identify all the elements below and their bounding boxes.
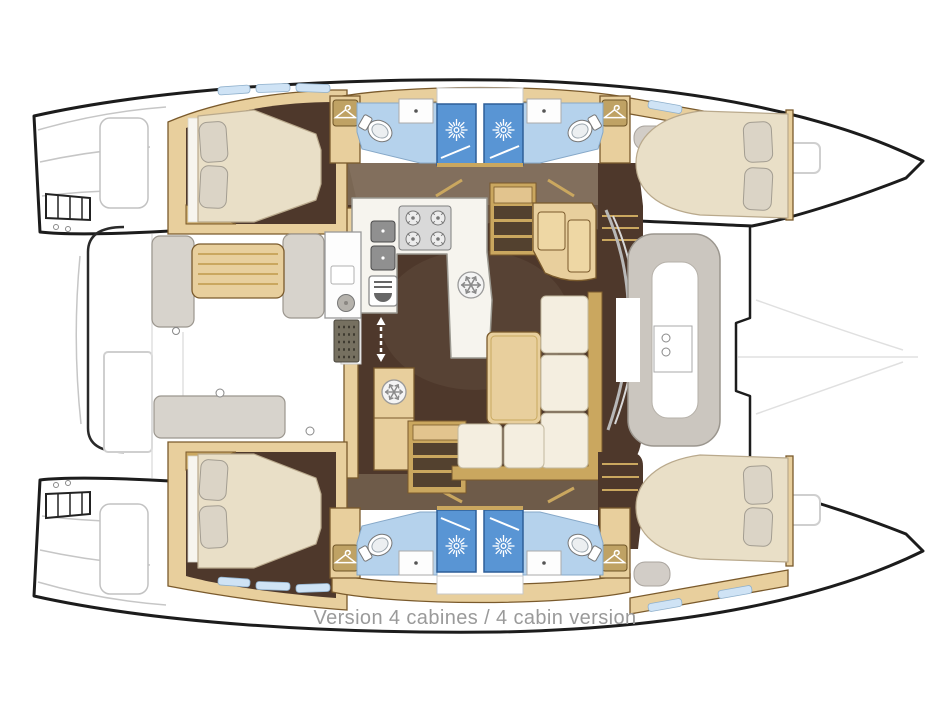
cockpit-aft-bench xyxy=(154,396,285,438)
deck-fitting xyxy=(662,348,670,356)
davit-line xyxy=(76,256,81,424)
nav-station xyxy=(533,203,596,281)
pillow xyxy=(199,459,229,501)
cabin-aft-starboard xyxy=(168,442,347,610)
cockpit-bench xyxy=(152,236,194,327)
pillow xyxy=(199,165,228,208)
stairs-starboard-hull xyxy=(408,421,466,493)
hull-window xyxy=(256,83,290,92)
pillow xyxy=(743,121,773,162)
cockpit xyxy=(152,232,361,478)
deck-fitting xyxy=(662,334,670,342)
plan-caption: Version 4 cabines / 4 cabin version xyxy=(0,607,950,630)
hull-window xyxy=(296,83,330,92)
pillow xyxy=(199,121,229,163)
fridge-snowflake-icon xyxy=(458,272,484,298)
wardrobe-hanger-icon xyxy=(602,545,627,571)
hull-window xyxy=(218,577,250,587)
oven-icon xyxy=(369,276,397,306)
seat xyxy=(634,562,670,586)
pillow xyxy=(743,167,773,210)
pillow xyxy=(743,507,773,546)
hull-window xyxy=(218,85,250,95)
saloon-table xyxy=(487,332,541,424)
stairs-port-hull xyxy=(490,183,536,255)
wardrobe-hanger-icon xyxy=(333,545,358,571)
cockpit-grill xyxy=(334,320,359,362)
aft-platform xyxy=(104,352,152,452)
deck-fitting xyxy=(306,427,314,435)
floorplan-svg xyxy=(0,0,950,712)
hull-window xyxy=(256,581,290,590)
bow-locker xyxy=(654,326,692,372)
pillow xyxy=(743,465,773,504)
lockers xyxy=(437,576,523,594)
cockpit-bench xyxy=(283,234,324,318)
trampoline-line xyxy=(756,362,903,414)
hull-window xyxy=(296,583,330,592)
cockpit-wetbar xyxy=(325,232,361,318)
wardrobe-hanger-icon xyxy=(602,100,627,126)
wardrobe-hanger-icon xyxy=(333,100,358,126)
deck-fitting xyxy=(216,389,224,397)
foredeck-lounge xyxy=(616,234,720,446)
bridgedeck-front-edge xyxy=(736,227,750,485)
pillow xyxy=(199,505,228,548)
floorplan-page: Version 4 cabines / 4 cabin version xyxy=(0,0,950,712)
deck-fitting xyxy=(173,328,180,335)
saloon xyxy=(341,163,643,549)
trampoline-line xyxy=(756,300,903,350)
cockpit-table xyxy=(192,244,284,298)
